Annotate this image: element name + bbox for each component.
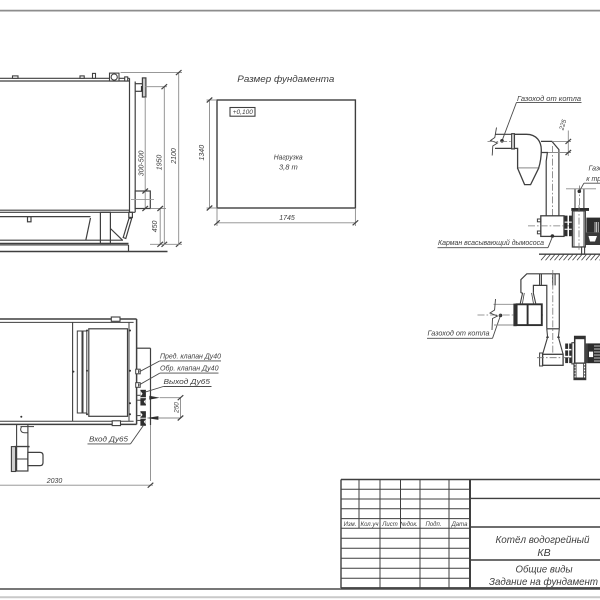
svg-text:Дата: Дата [451,522,468,528]
svg-text:1745: 1745 [279,215,295,222]
svg-text:Изм.: Изм. [344,522,357,528]
svg-text:Котёл водогрейный: Котёл водогрейный [496,534,590,546]
svg-text:1950: 1950 [156,155,163,171]
svg-text:Газоход от котла: Газоход от котла [428,329,490,337]
svg-text:Подп.: Подп. [426,522,442,528]
svg-text:450: 450 [152,220,159,232]
svg-text:2100: 2100 [171,148,178,165]
svg-text:Задание на фундамент: Задание на фундамент [489,576,598,588]
svg-text:Вход Ду65: Вход Ду65 [89,436,128,444]
svg-text:Нагрузка: Нагрузка [274,152,303,161]
svg-text:300-500: 300-500 [138,150,145,176]
svg-text:к трубе: к трубе [586,175,600,183]
svg-text:КВ: КВ [537,547,550,559]
svg-text:2030: 2030 [46,478,63,485]
svg-text:Обр. клапан Ду40: Обр. клапан Ду40 [160,365,219,373]
svg-text:Размер фундамента: Размер фундамента [237,74,334,85]
svg-text:Кол.уч: Кол.уч [361,522,379,528]
svg-text:Газоход от котла: Газоход от котла [517,95,581,103]
svg-text:3,8 т: 3,8 т [279,163,298,172]
svg-text:Газоход: Газоход [589,164,600,172]
svg-text:Карман всасывающий дымососа: Карман всасывающий дымососа [438,239,544,247]
svg-text:Лист: Лист [381,522,397,528]
svg-text:№док.: №док. [400,521,418,528]
svg-text:250: 250 [173,402,180,414]
svg-text:Пред. клапан Ду40: Пред. клапан Ду40 [160,352,221,360]
svg-text:Общие виды: Общие виды [516,563,574,575]
svg-text:Выход Ду65: Выход Ду65 [164,378,211,386]
svg-text:1340: 1340 [199,145,206,161]
svg-text:+0,100: +0,100 [233,109,253,116]
